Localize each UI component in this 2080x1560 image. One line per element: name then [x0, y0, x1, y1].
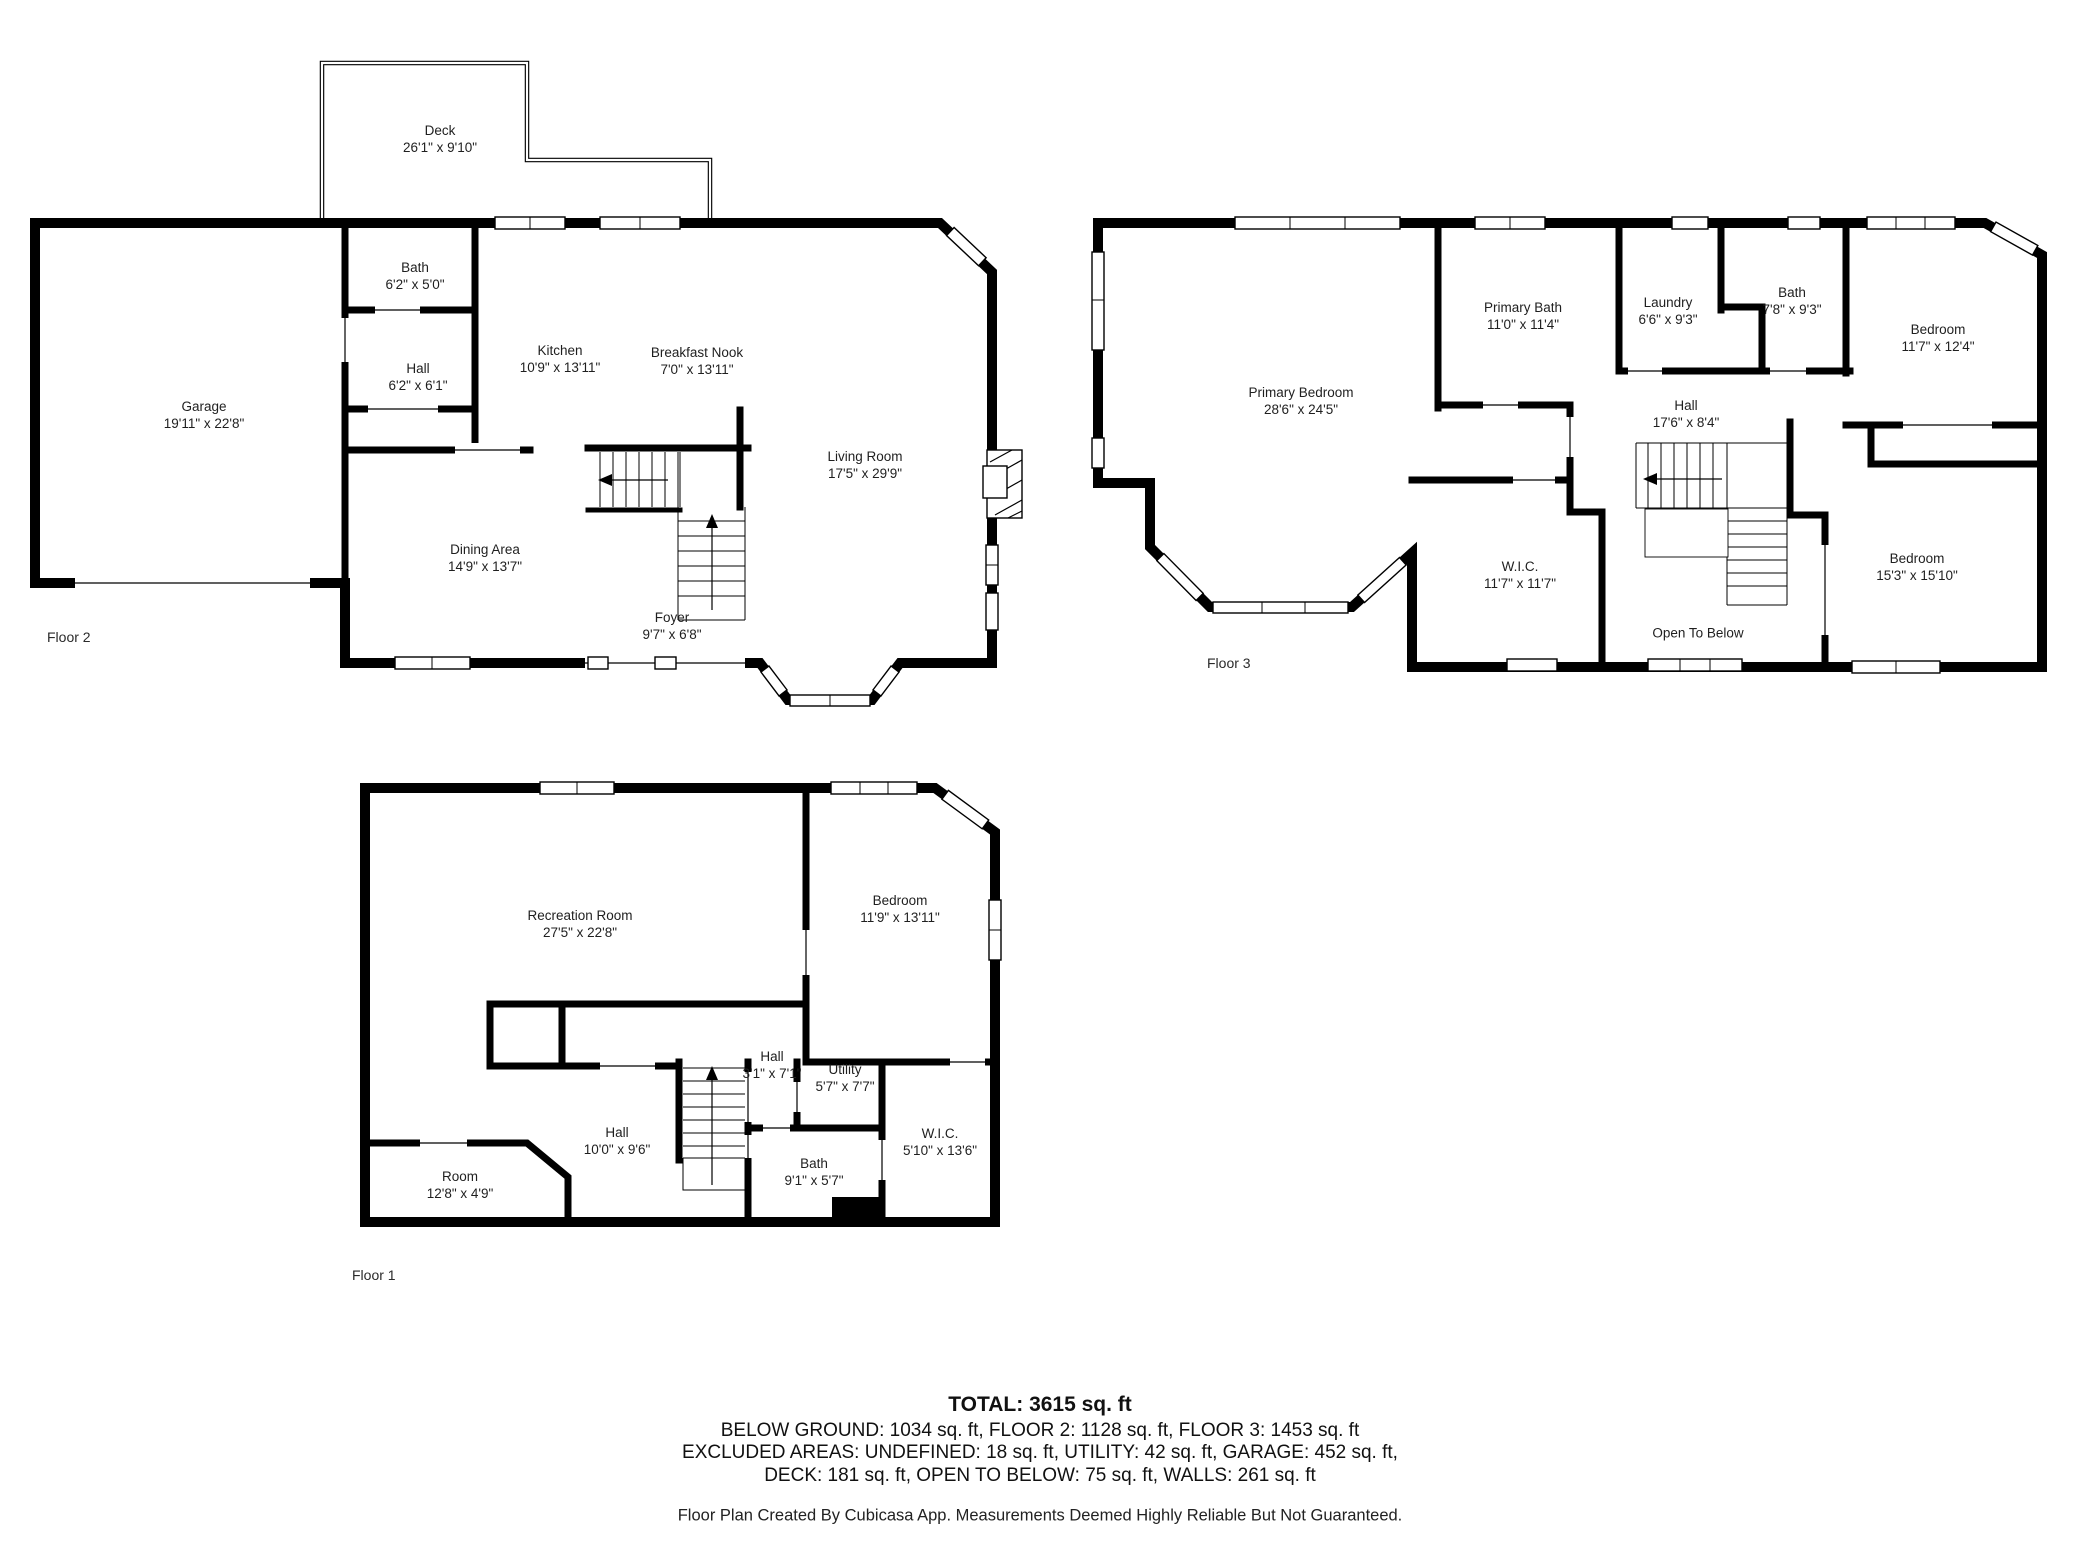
- summary-line1: BELOW GROUND: 1034 sq. ft, FLOOR 2: 1128…: [0, 1420, 2080, 1442]
- room-label-hall-f2: Hall6'2" x 6'1": [388, 360, 447, 394]
- room-label-bedroom-upper-f3: Bedroom11'7" x 12'4": [1901, 321, 1974, 355]
- floor2-caption: Floor 2: [47, 629, 91, 645]
- room-label-hall-f3: Hall17'6" x 8'4": [1653, 397, 1720, 431]
- room-label-wic-f1: W.I.C.5'10" x 13'6": [903, 1125, 977, 1159]
- room-label-bath-f2: Bath6'2" x 5'0": [385, 259, 444, 293]
- deck-outline: [322, 63, 710, 221]
- floorplan-page: Deck26'1" x 9'10" Bath6'2" x 5'0" Hall6'…: [0, 0, 2080, 1560]
- room-label-primary-bath: Primary Bath11'0" x 11'4": [1484, 299, 1562, 333]
- room-label-recreation-room: Recreation Room27'5" x 22'8": [527, 907, 632, 941]
- room-label-bath-f1: Bath9'1" x 5'7": [784, 1155, 843, 1189]
- room-label-laundry: Laundry6'6" x 9'3": [1638, 294, 1697, 328]
- room-label-primary-bedroom: Primary Bedroom28'6" x 24'5": [1248, 384, 1353, 418]
- room-label-utility: Utility5'7" x 7'7": [815, 1061, 874, 1095]
- room-label-kitchen: Kitchen10'9" x 13'11": [520, 342, 601, 376]
- floor3-caption: Floor 3: [1207, 655, 1251, 671]
- room-label-bedroom-f1: Bedroom11'9" x 13'11": [860, 892, 940, 926]
- room-label-bath-f3: Bath7'8" x 9'3": [1762, 284, 1821, 318]
- room-label-living-room: Living Room17'5" x 29'9": [827, 448, 902, 482]
- room-label-foyer: Foyer9'7" x 6'8": [642, 609, 701, 643]
- room-label-dining-area: Dining Area14'9" x 13'7": [448, 541, 522, 575]
- room-label-room-f1: Room12'8" x 4'9": [427, 1168, 494, 1202]
- room-label-deck: Deck26'1" x 9'10": [403, 122, 477, 156]
- room-label-breakfast-nook: Breakfast Nook7'0" x 13'11": [651, 344, 743, 378]
- fireplace: [983, 450, 1022, 518]
- room-label-hall-small-f1: Hall3'1" x 7'1": [742, 1048, 801, 1082]
- floor3-plan: [1092, 217, 2042, 673]
- floor3-interior-walls: [1412, 223, 2038, 667]
- floor2-stairs: [598, 452, 745, 620]
- floor2-plan: [35, 63, 1022, 706]
- floor1-caption: Floor 1: [352, 1267, 396, 1283]
- room-label-open-to-below: Open To Below: [1652, 625, 1743, 642]
- room-label-wic-f3: W.I.C.11'7" x 11'7": [1484, 558, 1556, 592]
- room-label-hall-f1: Hall10'0" x 9'6": [584, 1124, 651, 1158]
- summary-total: TOTAL: 3615 sq. ft: [0, 1393, 2080, 1417]
- floor1-interior-walls: [365, 790, 995, 1222]
- summary-credit: Floor Plan Created By Cubicasa App. Meas…: [0, 1507, 2080, 1526]
- summary-line2: EXCLUDED AREAS: UNDEFINED: 18 sq. ft, UT…: [0, 1442, 2080, 1464]
- room-label-garage: Garage19'11" x 22'8": [164, 398, 245, 432]
- floorplan-canvas: [0, 0, 2080, 1560]
- room-label-bedroom-lower-f3: Bedroom15'3" x 15'10": [1876, 550, 1958, 584]
- summary-line3: DECK: 181 sq. ft, OPEN TO BELOW: 75 sq. …: [0, 1465, 2080, 1487]
- floor1-stairs: [683, 1066, 745, 1190]
- floor3-stairs: [1636, 443, 1787, 605]
